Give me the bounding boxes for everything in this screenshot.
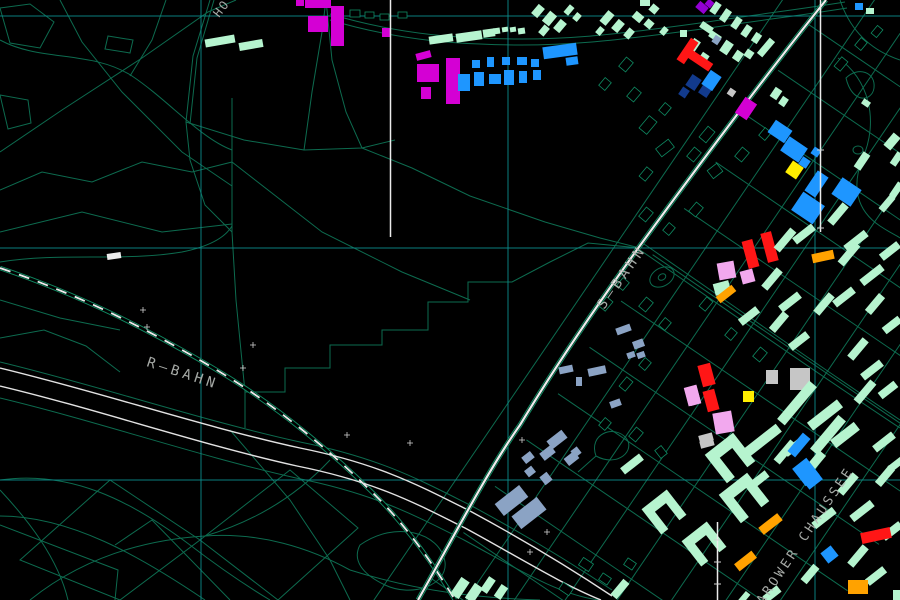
building-mint	[774, 227, 797, 252]
building-mint	[847, 544, 869, 568]
building-outline	[687, 147, 702, 162]
building-mint	[518, 28, 526, 35]
building-gray	[766, 370, 778, 384]
building-outline	[871, 25, 883, 37]
building-mint	[572, 12, 582, 22]
building-slate	[524, 466, 536, 478]
building-mint	[732, 50, 744, 63]
building-mint	[538, 24, 550, 36]
label-r-bahn: R—BAHN	[145, 355, 221, 393]
building-mint	[866, 8, 874, 14]
building-mint	[599, 10, 614, 26]
building-outline	[834, 57, 848, 71]
building-outline	[656, 139, 675, 157]
building-red	[697, 363, 715, 388]
r-bahn-railway	[0, 268, 455, 600]
building-pink	[712, 411, 734, 435]
building-mint	[893, 590, 900, 600]
building-mag	[417, 64, 439, 82]
building-mint	[205, 34, 236, 47]
building-blue	[820, 545, 838, 563]
building-mint	[832, 286, 856, 307]
building-mint	[736, 591, 751, 600]
building-mint	[878, 381, 899, 400]
building-blue	[533, 70, 541, 80]
building-mint	[743, 48, 754, 59]
building-blue	[517, 57, 527, 65]
building-outline	[599, 573, 612, 585]
building-slate	[539, 472, 552, 485]
building-outline	[398, 12, 407, 18]
building-blue	[519, 71, 527, 83]
map-canvas[interactable]: S—BAHNR—BAHNKAROWER CHAUSSEEHO	[0, 0, 900, 600]
building-slate	[609, 398, 622, 408]
building-mint	[879, 241, 900, 261]
building-mint	[502, 27, 509, 33]
building-slate	[576, 377, 582, 386]
building-yel	[743, 391, 754, 402]
building-outline	[639, 167, 653, 181]
building-mint	[640, 0, 650, 6]
building-mint	[757, 38, 775, 58]
building-outline	[663, 223, 676, 236]
building-red	[702, 389, 719, 412]
building-org	[848, 580, 868, 594]
building-blue	[489, 74, 501, 84]
building-mint	[563, 4, 574, 16]
building-pink	[717, 261, 737, 281]
building-mint	[849, 500, 874, 522]
building-mint	[648, 3, 659, 14]
building-mint	[493, 28, 501, 35]
building-org	[734, 551, 757, 572]
building-outline	[624, 558, 637, 570]
building-mint	[238, 39, 263, 51]
building-outline	[689, 202, 704, 217]
building-outline	[365, 12, 374, 18]
building-blue	[855, 3, 863, 10]
building-outline	[735, 147, 750, 162]
building-mint	[761, 267, 783, 291]
building-mint	[854, 379, 877, 404]
building-outline	[855, 38, 868, 51]
building-mint	[751, 32, 762, 44]
building-outline	[639, 116, 657, 135]
building-outline	[627, 87, 642, 102]
building-outline	[350, 10, 360, 17]
building-mag	[296, 0, 304, 6]
building-mint	[792, 223, 816, 244]
building-mint	[778, 96, 789, 107]
building-courtyard-block	[642, 490, 687, 535]
building-mint	[865, 293, 885, 315]
building-blue	[502, 57, 510, 65]
building-blue	[487, 57, 494, 67]
building-mag	[421, 87, 431, 99]
building-mint	[872, 431, 896, 452]
building-mint	[510, 27, 517, 33]
building-pink	[740, 269, 756, 285]
building-outline	[659, 103, 672, 116]
label-street-partial: HO	[210, 0, 232, 20]
building-mint	[860, 359, 884, 380]
building-mint	[738, 306, 760, 326]
building-mint	[883, 132, 900, 150]
building-mint	[620, 453, 644, 474]
building-org	[758, 513, 782, 535]
building-mint	[778, 291, 802, 312]
building-outline	[619, 57, 634, 72]
building-mint	[480, 576, 496, 594]
building-mint	[611, 19, 625, 33]
building-mint	[643, 18, 654, 29]
building-outline	[699, 126, 715, 143]
building-mint	[680, 30, 687, 37]
map-viewport[interactable]: S—BAHNR—BAHNKAROWER CHAUSSEEHO	[0, 0, 900, 600]
building-navy	[685, 74, 701, 91]
building-slate	[615, 324, 631, 336]
building-mint	[770, 87, 783, 101]
building-mint	[744, 424, 782, 457]
building-mint	[827, 202, 849, 226]
building-red	[860, 527, 892, 544]
building-mag	[415, 50, 431, 61]
building-blue	[804, 170, 828, 197]
building-slate	[521, 451, 535, 464]
building-navy	[678, 87, 690, 99]
building-mag	[446, 58, 460, 104]
building-blue	[472, 60, 480, 68]
building-mint	[632, 11, 645, 24]
building-courtyard-block	[682, 522, 727, 567]
building-blue	[474, 72, 484, 86]
building-mag	[308, 16, 328, 32]
building-gray	[727, 88, 737, 98]
building-mint	[847, 337, 869, 361]
building-white	[107, 252, 122, 260]
building-mint	[882, 316, 900, 335]
building-layer	[107, 0, 900, 600]
building-mag	[305, 0, 331, 8]
building-slate	[587, 365, 606, 377]
building-mint	[865, 566, 887, 586]
building-blue	[531, 59, 539, 67]
building-mint	[553, 19, 567, 33]
building-mint	[542, 11, 557, 27]
building-blue	[504, 70, 514, 85]
building-mint	[719, 40, 734, 56]
building-outline	[639, 207, 654, 222]
building-outline	[655, 446, 667, 459]
building-blue	[566, 56, 579, 66]
building-mint	[769, 311, 789, 333]
building-outline	[725, 328, 738, 341]
building-slate	[558, 365, 573, 375]
building-mint	[456, 30, 483, 43]
building-blue	[458, 74, 470, 91]
building-blue	[542, 43, 577, 60]
building-mint	[740, 24, 753, 38]
building-outline	[753, 347, 768, 362]
building-outline	[380, 14, 389, 20]
building-mag	[382, 28, 391, 37]
building-outline	[639, 297, 654, 312]
building-red	[687, 49, 714, 71]
building-mint	[890, 151, 900, 167]
building-outline	[639, 358, 652, 371]
building-outline	[619, 377, 633, 391]
building-mint	[788, 331, 810, 351]
building-mag	[331, 6, 344, 46]
building-outline	[599, 78, 612, 91]
